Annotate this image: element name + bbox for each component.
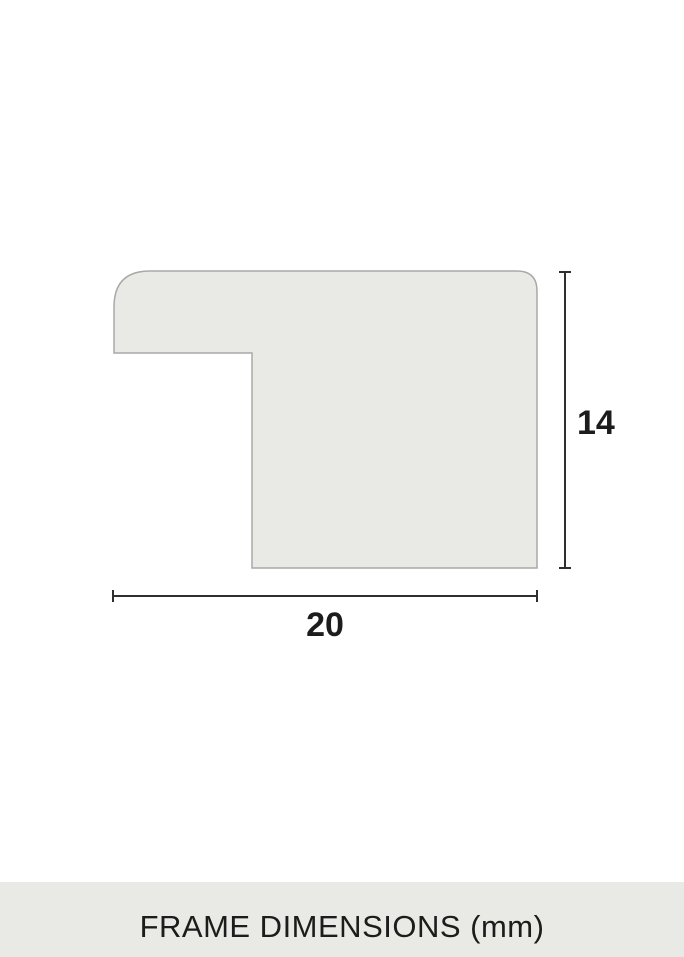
width-dimension-line: 20 [113,590,537,644]
frame-dimensions-caption: FRAME DIMENSIONS (mm) [140,911,545,942]
footer-bar: FRAME DIMENSIONS (mm) [0,882,684,957]
frame-profile-diagram: 14 20 [0,0,684,957]
frame-profile-shape [114,271,537,568]
height-dimension-line: 14 [559,272,615,568]
width-dimension-label: 20 [306,606,344,644]
height-dimension-label: 14 [577,404,615,442]
